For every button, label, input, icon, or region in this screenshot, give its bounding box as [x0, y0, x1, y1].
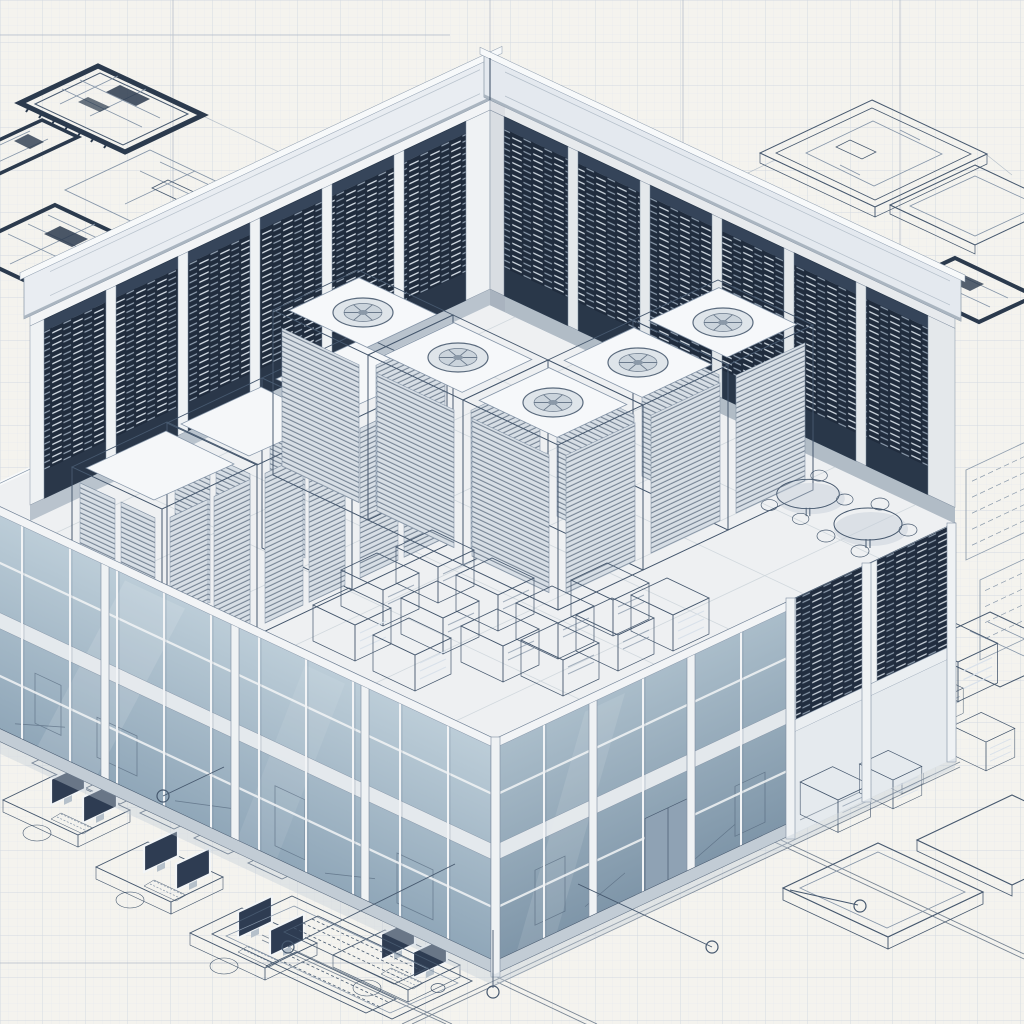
isometric-datacenter-drawing	[0, 0, 1024, 1024]
facade-column	[947, 523, 956, 762]
corner-shading	[490, 100, 505, 312]
blueprint-illustration	[0, 0, 1024, 1024]
facade-column	[862, 563, 871, 802]
facade-column	[786, 598, 795, 839]
corner-post	[491, 737, 500, 977]
